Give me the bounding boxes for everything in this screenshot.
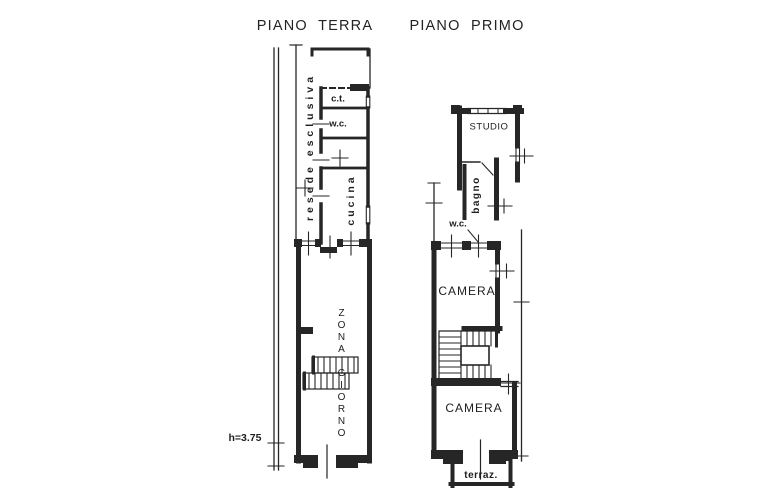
ground-floor-title: PIANO TERRA [257,19,373,34]
resede-esclusiva-label: resede esclusiva [305,73,316,221]
floor-plan-sheet: PIANO TERRA PIANO PRIMO resede esclusiva… [0,0,764,492]
camera-1-label: CAMERA [438,285,495,297]
studio-room-label: STUDIO [470,122,509,132]
zona-giorno-room [294,247,372,478]
service-rooms [313,84,370,243]
camera-2-room [431,384,518,479]
stairs-first-floor [439,331,497,379]
bagno-label: bagno [472,176,482,214]
resede-area [290,45,370,240]
ground-floor-drawing [268,45,372,478]
camera-1-room [434,246,514,456]
site-boundary-line [268,48,284,470]
stairs-ground-floor [303,357,358,389]
facade-wall [294,232,372,258]
camera-2-label: CAMERA [445,402,502,414]
cucina-label: cucina [346,174,357,225]
first-floor-title: PIANO PRIMO [409,19,524,34]
zona-giorno-label: ZONA GIORNO [336,308,346,440]
mid-wall [431,374,520,394]
terrace-label: terraz. [464,471,498,481]
wc-first-floor-label: w.c. [449,219,467,229]
wc-ground-floor-label: w.c. [329,119,347,129]
floor-plan-drawing [0,0,764,492]
height-annotation: h=3.75 [229,433,262,444]
ct-room-label: c.t. [331,94,345,104]
